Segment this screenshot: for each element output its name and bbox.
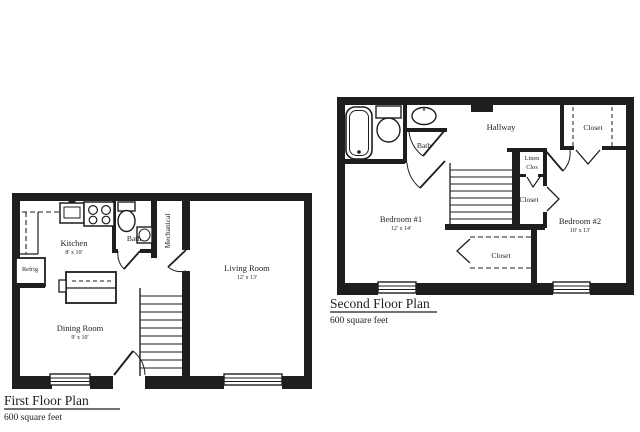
linen-closet-label-line1: Linen bbox=[525, 155, 541, 162]
bedroom1-door bbox=[407, 161, 445, 188]
kitchen-cabinets bbox=[20, 212, 60, 254]
first-floor-area: 600 square feet bbox=[4, 412, 62, 423]
bedroom2-label: Bedroom #2 bbox=[559, 216, 601, 226]
bath-label-ff: Bath bbox=[127, 234, 141, 243]
kitchen-dims: 8' x 10' bbox=[65, 250, 82, 256]
hall-closet-bifold-door bbox=[576, 150, 600, 164]
refrigerator-label: Refrig bbox=[22, 266, 39, 273]
floor-plans-drawing: Refrig Kitchen 8' x 10' Bath Mech bbox=[0, 0, 640, 432]
second-floor-stairs bbox=[450, 163, 512, 224]
front-window-right bbox=[224, 374, 282, 385]
front-window-left bbox=[50, 374, 90, 385]
toilet-fixture-ff bbox=[118, 202, 135, 232]
kitchen-label: Kitchen bbox=[61, 238, 89, 248]
bedroom2-dims: 10' x 13' bbox=[570, 228, 590, 234]
dining-room-label: Dining Room bbox=[57, 323, 104, 333]
first-floor-stairs bbox=[140, 288, 182, 376]
linen-closet-door bbox=[527, 177, 540, 187]
second-floor-area: 600 square feet bbox=[330, 315, 388, 326]
kitchen-island bbox=[59, 272, 116, 303]
bedroom1-dims: 12' x 14' bbox=[391, 226, 411, 232]
living-room-label: Living Room bbox=[224, 263, 270, 273]
second-floor-window-right bbox=[553, 282, 590, 293]
mechanical-door-ff bbox=[168, 250, 186, 272]
bath-door-ff bbox=[118, 251, 140, 269]
bedroom1-label: Bedroom #1 bbox=[380, 214, 422, 224]
hall-closet-label: Closet bbox=[583, 123, 603, 132]
mechanical-label: Mechanical bbox=[163, 214, 172, 249]
linen-closet-label-line2: Clos bbox=[526, 164, 538, 171]
first-floor-plan: Refrig Kitchen 8' x 10' Bath Mech bbox=[4, 193, 312, 423]
mid-closet-door bbox=[547, 187, 559, 211]
toilet-fixture-sf bbox=[376, 106, 401, 142]
kitchen-sink-fixture bbox=[60, 200, 84, 223]
bath-label-sf: Bath bbox=[417, 141, 431, 150]
second-floor-plan: Bath Hallway Closet Linen Clos Closet Cl… bbox=[330, 97, 634, 326]
first-floor-title: First Floor Plan bbox=[4, 393, 89, 408]
second-floor-window-left bbox=[378, 282, 416, 293]
hallway-label: Hallway bbox=[487, 122, 517, 132]
bathtub-fixture bbox=[346, 107, 372, 159]
bedroom1-closet-door bbox=[457, 239, 470, 263]
second-floor-title: Second Floor Plan bbox=[330, 296, 430, 311]
bath-sink-fixture-sf bbox=[412, 107, 436, 125]
floor-plan-sheet: Refrig Kitchen 8' x 10' Bath Mech bbox=[0, 0, 640, 432]
living-room-dims: 12' x 13' bbox=[237, 275, 257, 281]
bedroom2-door bbox=[545, 150, 570, 171]
dining-room-dims: 9' x 10' bbox=[71, 335, 88, 341]
bedroom1-closet-label: Closet bbox=[491, 251, 511, 260]
stove-fixture bbox=[84, 202, 114, 226]
mid-closet-label: Closet bbox=[519, 195, 539, 204]
refrigerator-fixture: Refrig bbox=[16, 258, 45, 288]
